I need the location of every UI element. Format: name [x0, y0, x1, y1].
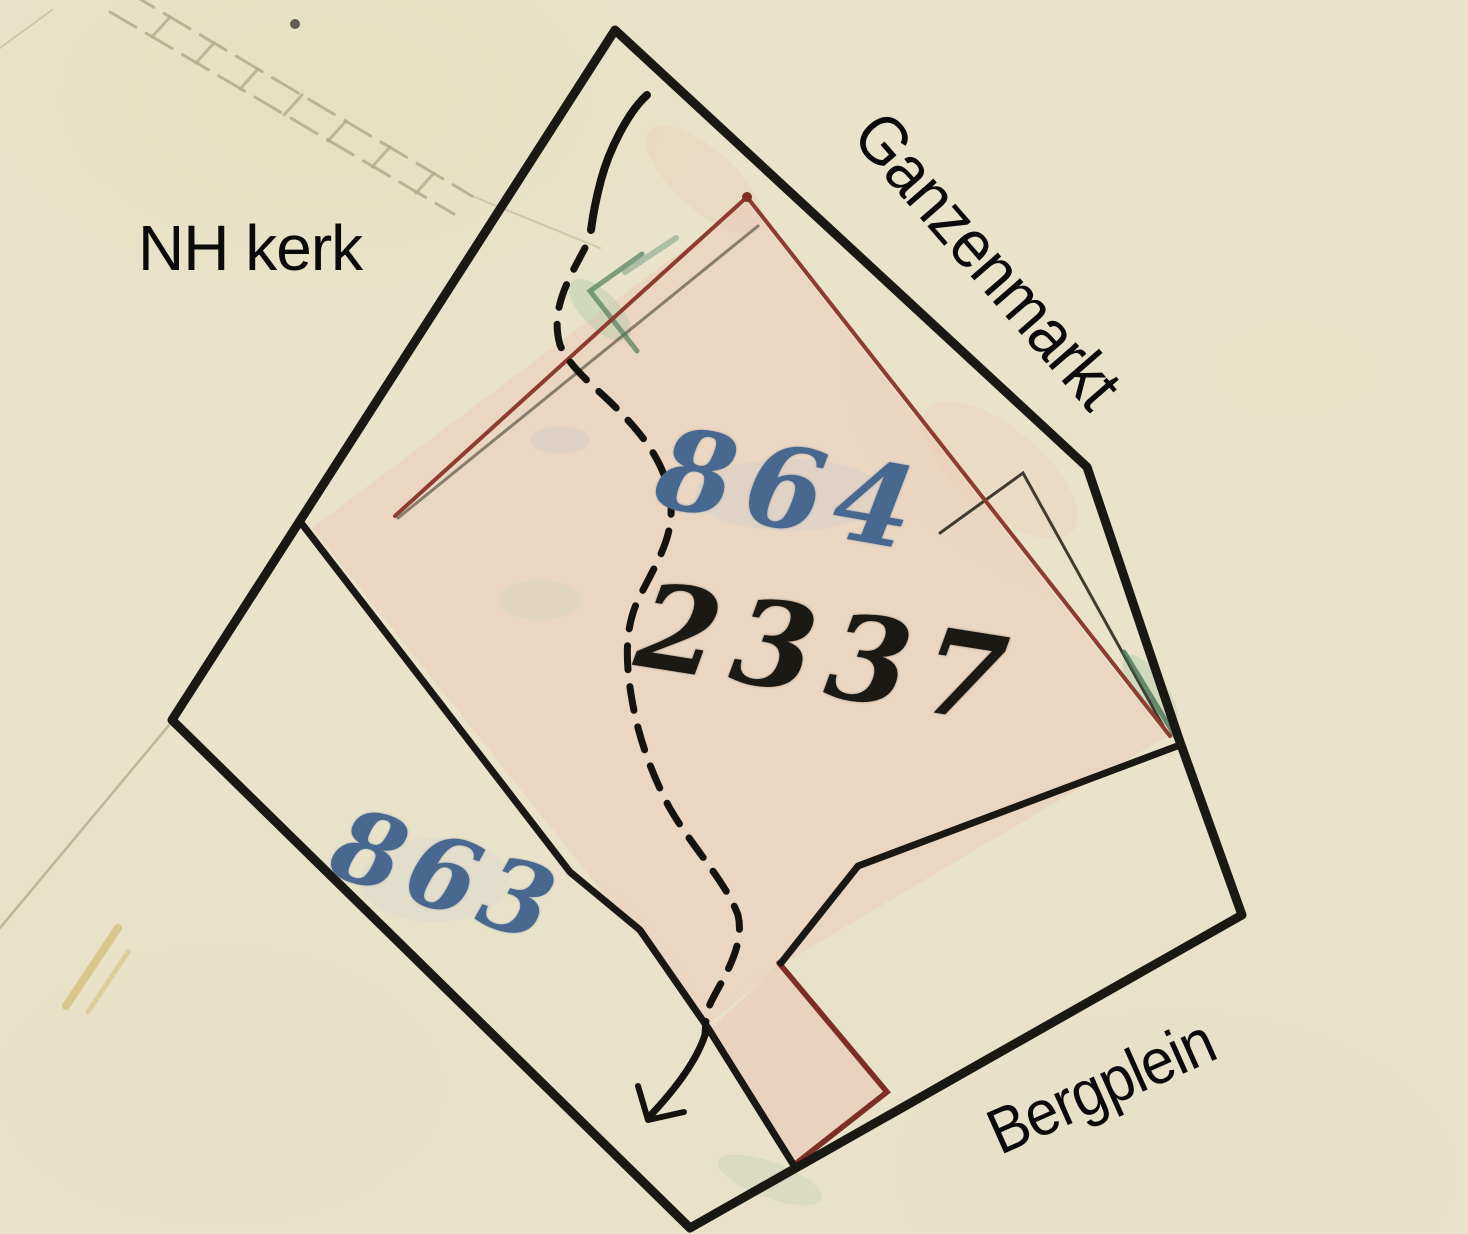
yellow-pencil-mark — [66, 928, 128, 1012]
green-blotch — [498, 580, 582, 620]
label-nh-kerk: NH kerk — [138, 216, 362, 280]
route-arrow-shaft — [648, 1035, 705, 1118]
ink-dot — [290, 19, 300, 29]
cadastral-sketch-map: NH kerk Ganzenmarkt Bergplein 864 2337 8… — [0, 0, 1468, 1234]
ladder-rungs — [152, 17, 434, 193]
red-apex-blob — [742, 192, 752, 202]
pink-blotch — [630, 108, 780, 252]
blue-scan-blotch — [530, 426, 590, 454]
route-top-stroke — [591, 95, 647, 230]
faint-extension-line — [0, 724, 170, 928]
